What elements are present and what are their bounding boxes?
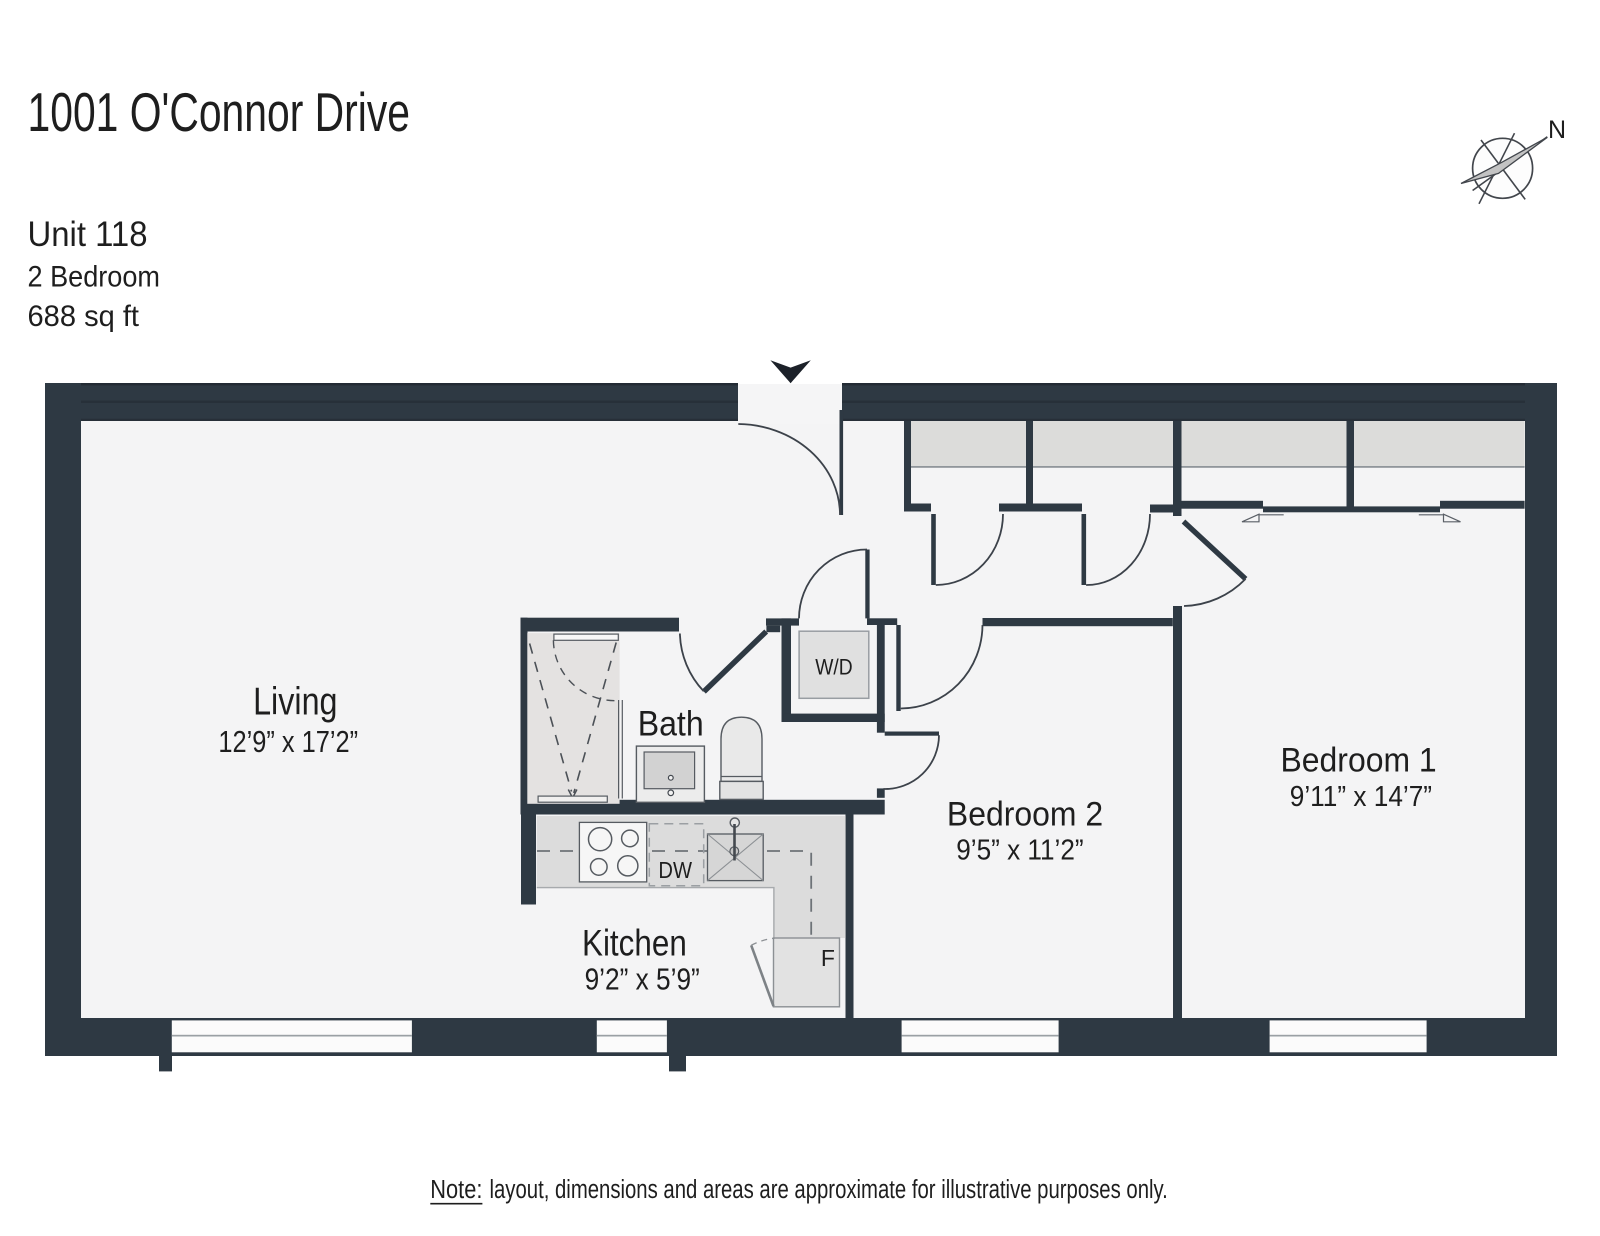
svg-text:N: N bbox=[1548, 116, 1566, 144]
svg-text:9’5” x 11’2”: 9’5” x 11’2” bbox=[956, 835, 1083, 867]
svg-text:W/D: W/D bbox=[815, 655, 852, 680]
svg-text:1001 O'Connor Drive: 1001 O'Connor Drive bbox=[28, 81, 411, 143]
svg-text:9’11” x 14’7”: 9’11” x 14’7” bbox=[1290, 781, 1432, 813]
svg-text:layout, dimensions and areas a: layout, dimensions and areas are approxi… bbox=[490, 1176, 1168, 1204]
svg-text:DW: DW bbox=[658, 857, 692, 883]
svg-text:12’9” x 17’2”: 12’9” x 17’2” bbox=[218, 724, 358, 759]
svg-text:Bath: Bath bbox=[638, 704, 704, 744]
svg-text:Bedroom 1: Bedroom 1 bbox=[1281, 742, 1437, 780]
svg-text:Bedroom 2: Bedroom 2 bbox=[947, 795, 1103, 833]
svg-text:Living: Living bbox=[253, 681, 337, 724]
svg-text:9’2” x 5’9”: 9’2” x 5’9” bbox=[585, 961, 700, 996]
svg-text:Unit 118: Unit 118 bbox=[28, 215, 148, 254]
svg-text:2 Bedroom: 2 Bedroom bbox=[28, 261, 161, 294]
svg-text:Note:: Note: bbox=[430, 1176, 482, 1204]
svg-text:F: F bbox=[821, 945, 835, 971]
svg-text:Kitchen: Kitchen bbox=[582, 923, 687, 964]
svg-text:688 sq ft: 688 sq ft bbox=[28, 300, 140, 333]
